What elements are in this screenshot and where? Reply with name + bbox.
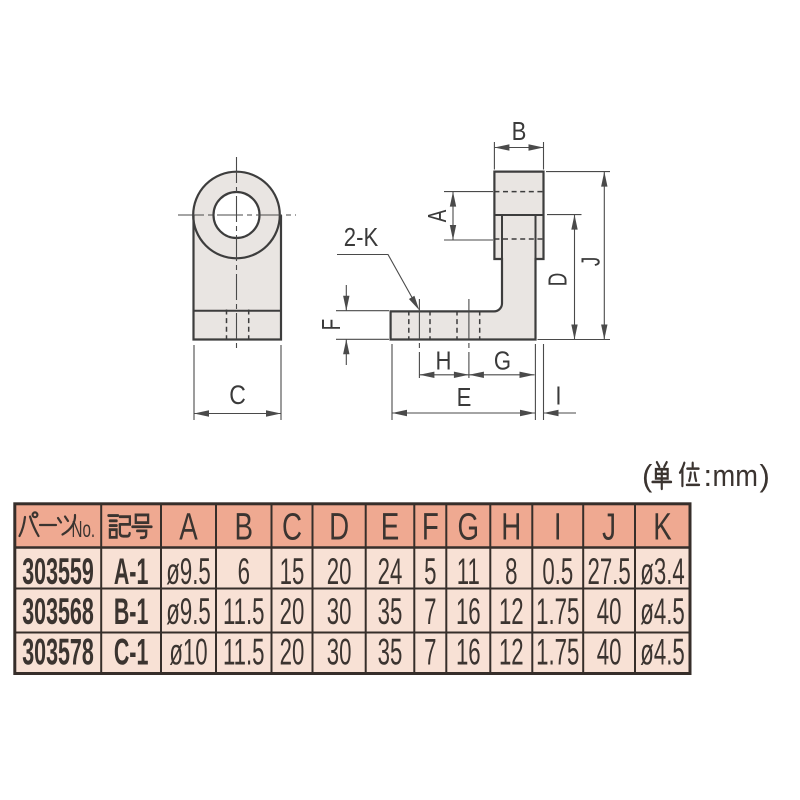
svg-text:20: 20 bbox=[327, 551, 352, 592]
svg-text:H: H bbox=[436, 347, 452, 376]
svg-text:ø10: ø10 bbox=[169, 632, 207, 673]
svg-text:A-1: A-1 bbox=[114, 552, 149, 592]
svg-text:C-1: C-1 bbox=[114, 633, 149, 673]
svg-text:35: 35 bbox=[378, 591, 403, 632]
svg-text:12: 12 bbox=[499, 591, 524, 632]
svg-text:27.5: 27.5 bbox=[587, 551, 630, 592]
svg-text:35: 35 bbox=[378, 632, 403, 673]
svg-text:ø3.4: ø3.4 bbox=[640, 551, 684, 592]
svg-text:C: C bbox=[229, 380, 246, 410]
svg-text:ø9.5: ø9.5 bbox=[166, 591, 210, 632]
svg-text:ø9.5: ø9.5 bbox=[166, 551, 210, 592]
svg-text:D: D bbox=[542, 273, 572, 287]
svg-text:2-K: 2-K bbox=[344, 223, 378, 252]
svg-text:12: 12 bbox=[499, 632, 524, 673]
svg-text:11.5: 11.5 bbox=[223, 632, 265, 673]
svg-text:mm: mm bbox=[713, 459, 758, 493]
svg-text:ø4.5: ø4.5 bbox=[640, 591, 684, 632]
svg-text:303578: 303578 bbox=[22, 633, 94, 673]
svg-text:16: 16 bbox=[456, 632, 481, 673]
svg-text:J: J bbox=[575, 257, 605, 266]
svg-text:11.5: 11.5 bbox=[223, 591, 265, 632]
svg-text:ø4.5: ø4.5 bbox=[640, 632, 684, 673]
svg-text:B: B bbox=[512, 117, 527, 146]
svg-text:F: F bbox=[316, 319, 346, 330]
svg-text:E: E bbox=[381, 506, 400, 548]
svg-text:16: 16 bbox=[456, 591, 481, 632]
svg-text:G: G bbox=[494, 347, 511, 376]
svg-text:D: D bbox=[329, 506, 349, 548]
svg-text:20: 20 bbox=[280, 591, 305, 632]
svg-text:J: J bbox=[602, 506, 616, 548]
svg-text:0.5: 0.5 bbox=[542, 551, 573, 592]
svg-text:20: 20 bbox=[280, 632, 305, 673]
svg-text:15: 15 bbox=[280, 551, 305, 592]
svg-text:30: 30 bbox=[327, 591, 352, 632]
svg-text:A: A bbox=[422, 209, 452, 222]
svg-text:F: F bbox=[422, 506, 439, 548]
svg-text:B-1: B-1 bbox=[114, 592, 149, 632]
svg-text:303559: 303559 bbox=[22, 552, 94, 592]
svg-text:C: C bbox=[282, 506, 302, 548]
svg-text:303568: 303568 bbox=[22, 592, 94, 632]
svg-text:): ) bbox=[760, 458, 770, 493]
svg-text:6: 6 bbox=[238, 551, 250, 592]
svg-text:7: 7 bbox=[424, 632, 436, 673]
svg-text:40: 40 bbox=[597, 591, 622, 632]
svg-text:A: A bbox=[179, 506, 198, 548]
svg-text:11: 11 bbox=[457, 551, 480, 592]
svg-text:5: 5 bbox=[424, 551, 436, 592]
svg-text:7: 7 bbox=[424, 591, 436, 632]
svg-text:1.75: 1.75 bbox=[536, 632, 579, 673]
svg-text:1.75: 1.75 bbox=[536, 591, 579, 632]
svg-text:K: K bbox=[653, 506, 672, 548]
svg-text:40: 40 bbox=[597, 632, 622, 673]
svg-text:I: I bbox=[554, 506, 562, 548]
svg-text:B: B bbox=[234, 506, 253, 548]
svg-text:I: I bbox=[555, 382, 561, 411]
svg-text:H: H bbox=[501, 506, 521, 548]
svg-text:30: 30 bbox=[327, 632, 352, 673]
svg-text::: : bbox=[704, 458, 713, 493]
svg-text:8: 8 bbox=[505, 551, 517, 592]
svg-text:(: ( bbox=[642, 458, 653, 493]
svg-text:E: E bbox=[457, 383, 472, 412]
svg-text:24: 24 bbox=[378, 551, 403, 592]
svg-text:No.: No. bbox=[72, 517, 96, 543]
svg-text:G: G bbox=[458, 506, 480, 548]
